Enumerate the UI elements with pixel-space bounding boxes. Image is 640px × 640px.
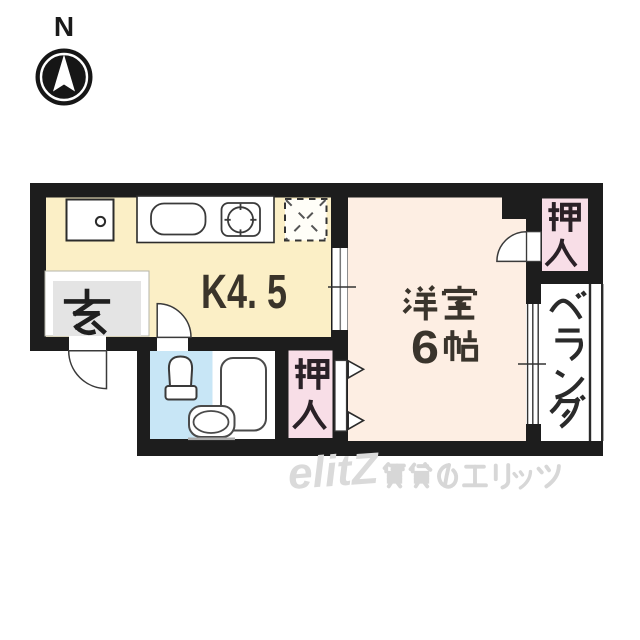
svg-text:K4. 5: K4. 5 xyxy=(201,266,287,319)
svg-text:N: N xyxy=(54,11,74,42)
svg-text:6: 6 xyxy=(411,321,439,373)
svg-text:elitZ: elitZ xyxy=(286,444,382,499)
